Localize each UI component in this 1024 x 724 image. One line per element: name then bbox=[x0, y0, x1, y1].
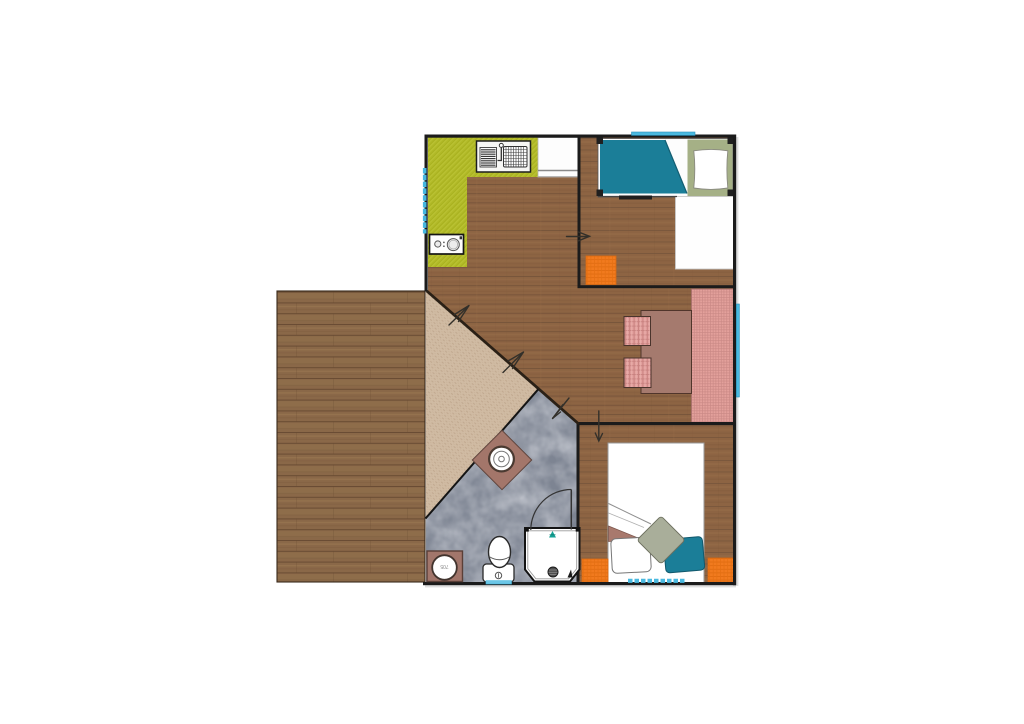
svg-text:705: 705 bbox=[440, 563, 449, 569]
